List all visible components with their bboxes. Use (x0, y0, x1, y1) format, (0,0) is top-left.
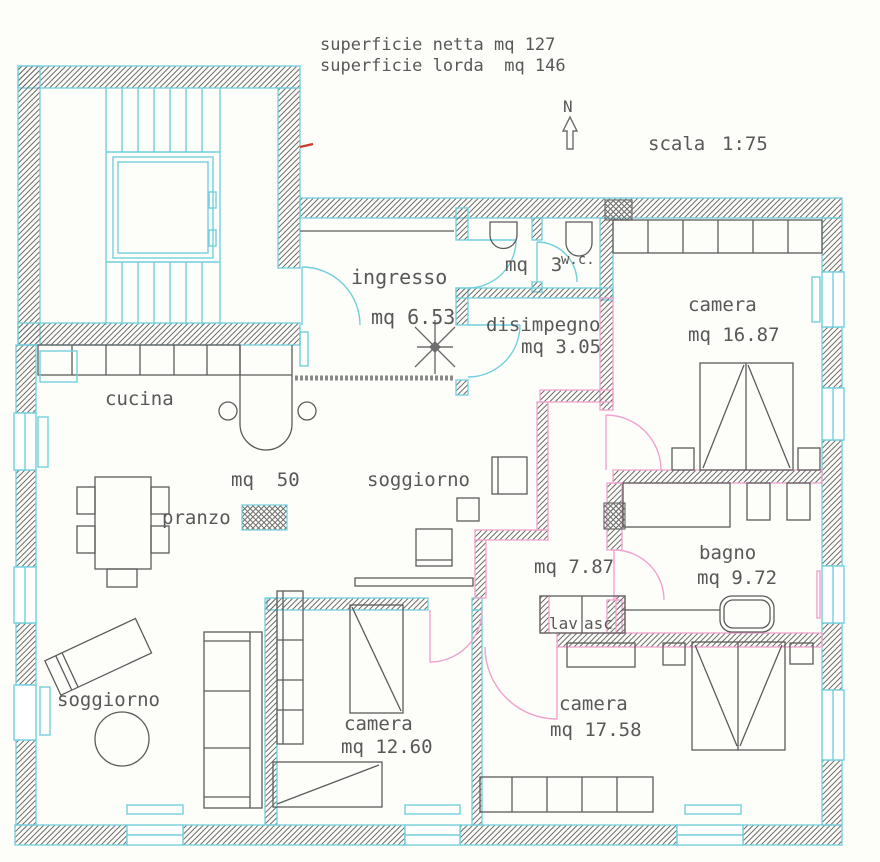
pilaster-pranzo (242, 505, 287, 530)
room-label-ingresso: ingresso (351, 265, 447, 289)
elevator-shaft (113, 157, 213, 258)
window-bottom-2 (405, 805, 460, 845)
labels: superficie netta mq 127 superficie lorda… (57, 35, 780, 758)
round-table (95, 712, 149, 766)
sofa (204, 632, 262, 808)
gross-area-label: superficie lorda mq 146 (320, 56, 566, 76)
room-label-wc: w.c. (561, 252, 595, 268)
pilaster-center (604, 503, 625, 529)
net-area-label: superficie netta mq 127 (320, 35, 555, 55)
furniture-camera-sud-est (480, 642, 813, 812)
room-area-disimpegno: mq 3.05 (521, 336, 601, 358)
room-label-camera-sud-est: camera (559, 693, 628, 715)
room-label-asc: asc (584, 614, 613, 633)
armchair (492, 457, 527, 494)
bench (355, 578, 473, 586)
furniture-soggiorno-sud (45, 618, 262, 808)
stool (219, 402, 237, 420)
chair (107, 569, 137, 587)
pilaster-top (605, 200, 632, 220)
scale-value: 1:75 (722, 133, 768, 155)
window-right-2 (822, 388, 844, 440)
pass-through (300, 332, 308, 366)
wardrobe (480, 777, 653, 812)
room-area-corridoio: mq 7.87 (534, 556, 614, 578)
scale-label: scala (648, 133, 705, 155)
shelf (277, 591, 303, 744)
window-right-4 (822, 690, 844, 760)
stairwell (106, 88, 220, 325)
chair (77, 526, 95, 553)
nightstand (672, 448, 694, 470)
window-left-2 (14, 567, 36, 623)
camera-nord-door (606, 415, 661, 470)
room-label-cucina: cucina (105, 388, 174, 410)
dining-table (95, 477, 151, 569)
chair (77, 487, 95, 514)
window-right-3 (817, 566, 844, 623)
room-area-bagno: mq 9.72 (697, 567, 777, 589)
room-area-soggiorno: mq 50 (231, 469, 300, 491)
window-left-1 (14, 413, 48, 470)
stool (298, 402, 316, 420)
room-label-pranzo: pranzo (162, 507, 231, 529)
kitchen-peninsula (240, 345, 292, 450)
room-area-camera-sud-ovest: mq 12.60 (341, 736, 433, 758)
room-label-soggiorno: soggiorno (367, 469, 470, 491)
window-left-3 (14, 685, 50, 740)
exterior-walls (15, 66, 842, 845)
room-label-disimpegno: disimpegno (486, 314, 600, 336)
room-area-wc: mq 3 (505, 254, 562, 276)
north-label: N (563, 97, 573, 116)
floor-plan-svg: superficie netta mq 127 superficie lorda… (0, 0, 880, 862)
room-label-soggiorno-sud: soggiorno (57, 689, 160, 711)
bidet-fixture (787, 483, 810, 520)
room-area-camera-nord: mq 16.87 (688, 324, 780, 346)
shower (623, 483, 730, 527)
nightstand (798, 448, 820, 470)
furniture-camera-sud-ovest (273, 591, 403, 807)
room-label-camera-sud-ovest: camera (344, 713, 413, 735)
room-label-camera-nord: camera (688, 294, 757, 316)
floor-plan-page: superficie netta mq 127 superficie lorda… (0, 0, 880, 862)
sidebo­ard-tilted (45, 618, 152, 695)
side-table (457, 498, 479, 521)
furniture-pranzo (77, 477, 169, 587)
toilet-fixture (566, 222, 592, 256)
room-label-bagno: bagno (699, 542, 756, 564)
window-bottom-3 (677, 805, 743, 845)
window-bottom-1 (127, 805, 183, 845)
red-mark (300, 144, 313, 147)
sink-fixture (490, 222, 517, 249)
north-arrow-icon (563, 117, 577, 149)
bagno-door (614, 550, 664, 600)
room-area-ingresso: mq 6.53 (371, 305, 455, 329)
window-right-1 (812, 272, 844, 327)
room-label-lav: lav (549, 614, 578, 633)
chair (151, 526, 169, 553)
room-area-camera-sud-est: mq 17.58 (550, 719, 642, 741)
wc-fixture (747, 483, 770, 520)
camera-sud-est-door (485, 647, 557, 719)
